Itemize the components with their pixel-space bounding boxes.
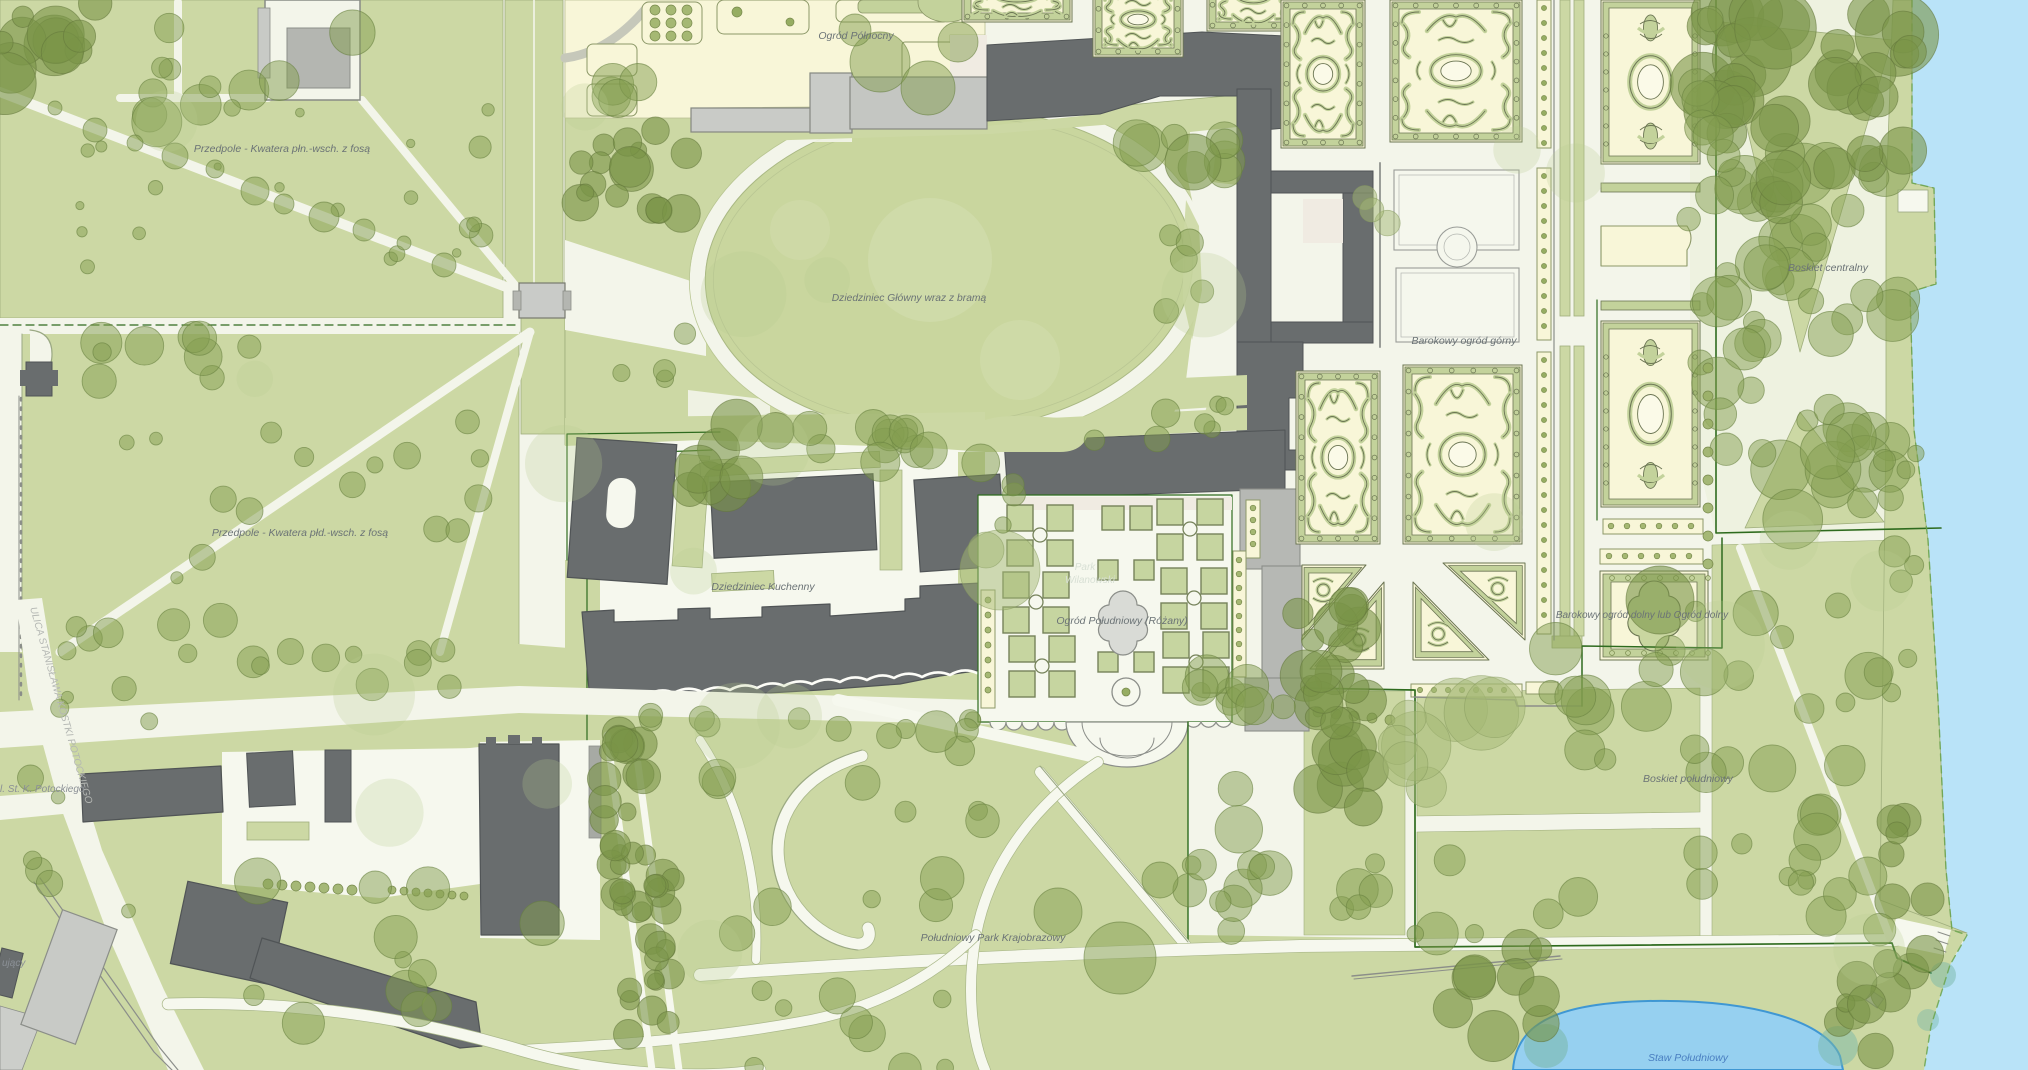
svg-text:Przedpole - Kwatera płn.-wsch.: Przedpole - Kwatera płn.-wsch. z fosą bbox=[194, 143, 370, 155]
svg-text:Park: Park bbox=[1075, 562, 1097, 573]
svg-text:Boskiet południowy: Boskiet południowy bbox=[1643, 773, 1734, 785]
svg-text:Południowy Park Krajobrazowy: Południowy Park Krajobrazowy bbox=[921, 932, 1066, 944]
svg-text:Dziedziniec Główny wraz z bram: Dziedziniec Główny wraz z bramą bbox=[832, 293, 987, 304]
svg-text:Barokowy ogród dolny lub Ogród: Barokowy ogród dolny lub Ogród dolny bbox=[1556, 610, 1729, 621]
svg-text:Wilanowski: Wilanowski bbox=[1065, 575, 1116, 586]
svg-text:Staw Południowy: Staw Południowy bbox=[1648, 1052, 1729, 1064]
svg-text:Ogród Północny: Ogród Północny bbox=[818, 30, 894, 42]
svg-text:Dziedziniec Kuchenny: Dziedziniec Kuchenny bbox=[711, 581, 815, 593]
svg-text:Przedpole - Kwatera płd.-wsch.: Przedpole - Kwatera płd.-wsch. z fosą bbox=[212, 527, 388, 539]
svg-text:ujący: ujący bbox=[2, 958, 26, 969]
svg-text:Barokowy ogród górny: Barokowy ogród górny bbox=[1411, 335, 1517, 347]
svg-text:Ogród Południowy (Różany): Ogród Południowy (Różany) bbox=[1056, 615, 1187, 627]
svg-text:Boskiet centralny: Boskiet centralny bbox=[1788, 262, 1869, 274]
svg-text:l. St. K. Potockiego: l. St. K. Potockiego bbox=[0, 784, 85, 795]
